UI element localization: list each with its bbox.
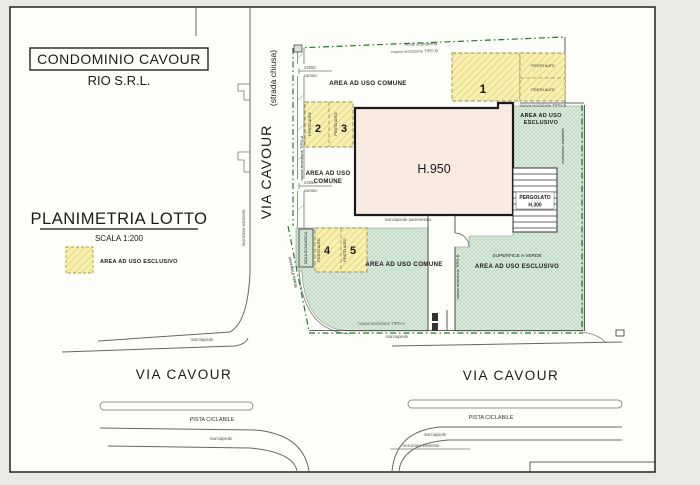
- street-name-vertical: VIA CAVOUR: [258, 125, 274, 220]
- recinzione-esistente-right-label: recinzione esistente: [560, 128, 565, 164]
- plan-title: PLANIMETRIA LOTTO: [31, 210, 208, 228]
- stall-3-label: POSTO AUTO: [334, 112, 338, 135]
- legend-swatch-label: AREA AD USO ESCLUSIVO: [100, 259, 178, 265]
- via-cavour-right-label: VIA CAVOUR: [463, 368, 560, 383]
- stall-2-label: POSTO AUTO: [308, 112, 312, 135]
- stall-label-tr-2: POSTO AUTO: [531, 88, 554, 92]
- scale-label: SCALA 1:200: [95, 234, 144, 243]
- area-comune-mid-label-1: AREA AD USO: [306, 171, 351, 177]
- area-comune-bottom-label: AREA AD USO COMUNE: [365, 261, 442, 268]
- gate-type-1: carraio: [304, 73, 317, 78]
- tipo-b-corridor-label: nuova recinzione TIPO-B: [455, 254, 460, 299]
- tipo-a-left-label: nuova recinzione TIPO-A: [299, 135, 304, 180]
- wall-post-top: [294, 45, 302, 52]
- gate-dim-1: 24650: [304, 65, 316, 70]
- company-name: RIO S.R.L.: [88, 73, 151, 88]
- area-comune-top-label: AREA AD USO COMUNE: [329, 80, 406, 87]
- gate-post-a: [432, 313, 438, 321]
- stall-3-number: 3: [341, 123, 347, 135]
- stall-5-number: 5: [350, 245, 356, 257]
- stall-block-top-right: [520, 53, 565, 101]
- area-esclusivo-right-label-1: AREA AD USO: [520, 113, 562, 119]
- stall-label-tr-1: POSTO AUTO: [531, 64, 554, 68]
- project-title: CONDOMINIO CAVOUR: [37, 51, 201, 67]
- stall-5-label: POSTO AUTO: [343, 238, 347, 261]
- marciapiede-label-2: marciapiede: [210, 436, 233, 441]
- marciapiede-label-4: marciapiede: [386, 334, 409, 339]
- area-comune-mid-label-2: COMUNE: [314, 179, 342, 185]
- gate-type-2: carraio: [304, 188, 317, 193]
- gate-dim-2: 24650: [304, 180, 316, 185]
- street-status-label: (strada chiusa): [268, 50, 278, 106]
- pergolato: PERGOLATO H.300: [513, 168, 557, 232]
- marciapiede-label-3: marciapiede: [424, 432, 447, 437]
- limite-proprieta-label: limite di proprieta': [405, 41, 438, 47]
- pergolato-height-label: H.300: [528, 203, 542, 209]
- area-1-number: 1: [480, 82, 487, 96]
- building-height-label: H.950: [417, 162, 450, 176]
- tipo-b-stalls-label: nuova recinzione TIPO-B: [520, 103, 567, 108]
- existing-fence-label-left: recinzione esistente: [241, 209, 246, 247]
- superficie-verde-label: SUPERFICE A VERDE: [492, 253, 541, 259]
- building-outline: [355, 103, 513, 215]
- building: H.950: [355, 103, 513, 215]
- recinzione-esistente-bottom-label: recinzione esistente: [402, 443, 440, 448]
- stall-4-number: 4: [324, 245, 331, 257]
- stall-2-number: 2: [315, 123, 321, 135]
- gate-post-b: [432, 323, 438, 331]
- pista-ciclabile-right-label: PISTA CICLABILE: [469, 415, 514, 421]
- tipo-a-bottom-label: nuova recinzione TIPO-A: [358, 321, 405, 326]
- sidewalk-paved-label: marciapiede pavimentato: [385, 217, 432, 222]
- area-esclusivo-bottom-label: AREA AD USO ESCLUSIVO: [475, 264, 559, 270]
- via-cavour-left-label: VIA CAVOUR: [136, 367, 233, 382]
- stall-4-label: POSTO AUTO: [317, 238, 321, 261]
- pergolato-label: PERGOLATO: [519, 195, 550, 201]
- marciapiede-label-1: marciapiede: [191, 337, 214, 342]
- legend-swatch: [66, 247, 93, 273]
- isola-ecologica-label: ISOLA ECOLOGICA: [304, 231, 308, 264]
- scanned-site-plan: (strada chiusa) VIA CAVOUR recinzione es…: [0, 0, 700, 485]
- pista-ciclabile-left-label: PISTA CICLABILE: [190, 417, 235, 423]
- area-esclusivo-right-label-2: ESCLUSIVO: [524, 120, 559, 126]
